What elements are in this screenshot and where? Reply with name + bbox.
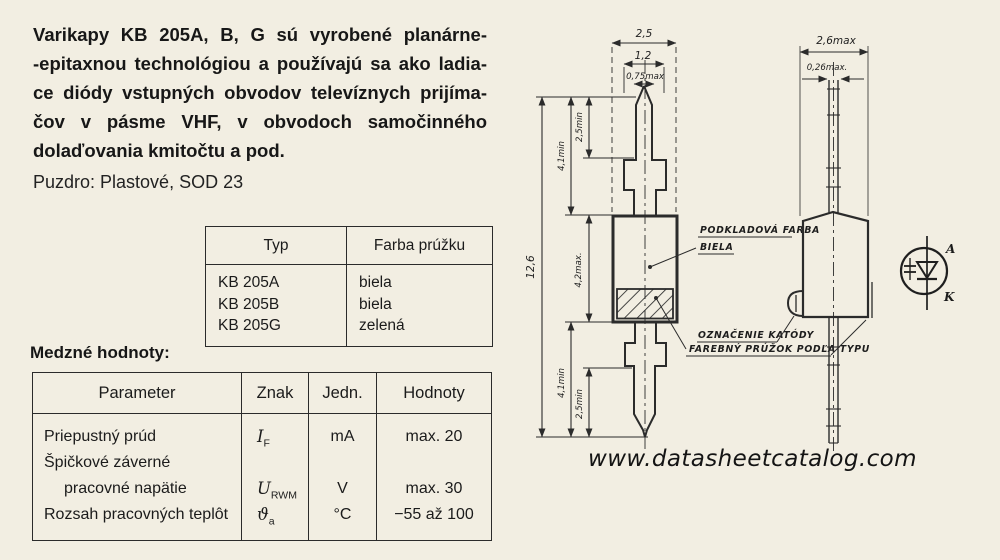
dim-right-lead: 0,26max. — [802, 63, 864, 79]
dim-label: 0,75max — [626, 72, 665, 82]
dim-top-inner: 0,75max — [626, 72, 665, 84]
label-cathode-mark: OZNAČENIE KATÓDY — [698, 329, 815, 341]
watermark: www.datasheetcatalog.com — [588, 446, 917, 472]
dim-label: 4,1min — [557, 368, 567, 398]
dim-lead-tip-bottom: 2,5min — [575, 368, 632, 437]
left-package-figure: 2,5 1,2 0,75max 12,6 4,1min 2,5min — [525, 28, 870, 452]
dim-lead-bottom: 4,1min — [557, 322, 571, 437]
dim-label: 4,2max. — [574, 252, 584, 287]
dim-label: 2,5min — [575, 389, 585, 419]
dim-lead-tip-top: 2,5min — [575, 97, 634, 158]
dim-label: 2,5min — [575, 112, 585, 142]
dim-label: 1,2 — [635, 50, 652, 62]
dim-label: 4,1min — [557, 141, 567, 171]
left-figure-outline — [613, 60, 677, 452]
left-figure-callouts: PODKLADOVÁ FARBA BIELA OZNAČENIE KATÓDY … — [648, 224, 870, 356]
varicap-symbol: A K — [901, 236, 955, 310]
label-base-color-line2: BIELA — [700, 242, 734, 253]
dim-label: 2,5 — [636, 28, 653, 40]
cathode-label: K — [943, 290, 955, 304]
dim-lead-top: 4,1min — [557, 97, 571, 215]
label-stripe: FAREBNÝ PRÚŽOK PODĽA TYPU — [689, 343, 870, 355]
dim-label: 0,26max. — [807, 63, 848, 73]
right-figure-outline — [788, 62, 872, 455]
dim-overall-height: 12,6 — [525, 97, 648, 437]
dim-label: 12,6 — [525, 255, 537, 279]
dim-label: 2,6max — [816, 35, 856, 47]
package-drawing: 2,5 1,2 0,75max 12,6 4,1min 2,5min — [0, 0, 1000, 560]
anode-label: A — [945, 242, 955, 256]
right-package-figure: 2,6max 0,26max. — [788, 35, 872, 455]
